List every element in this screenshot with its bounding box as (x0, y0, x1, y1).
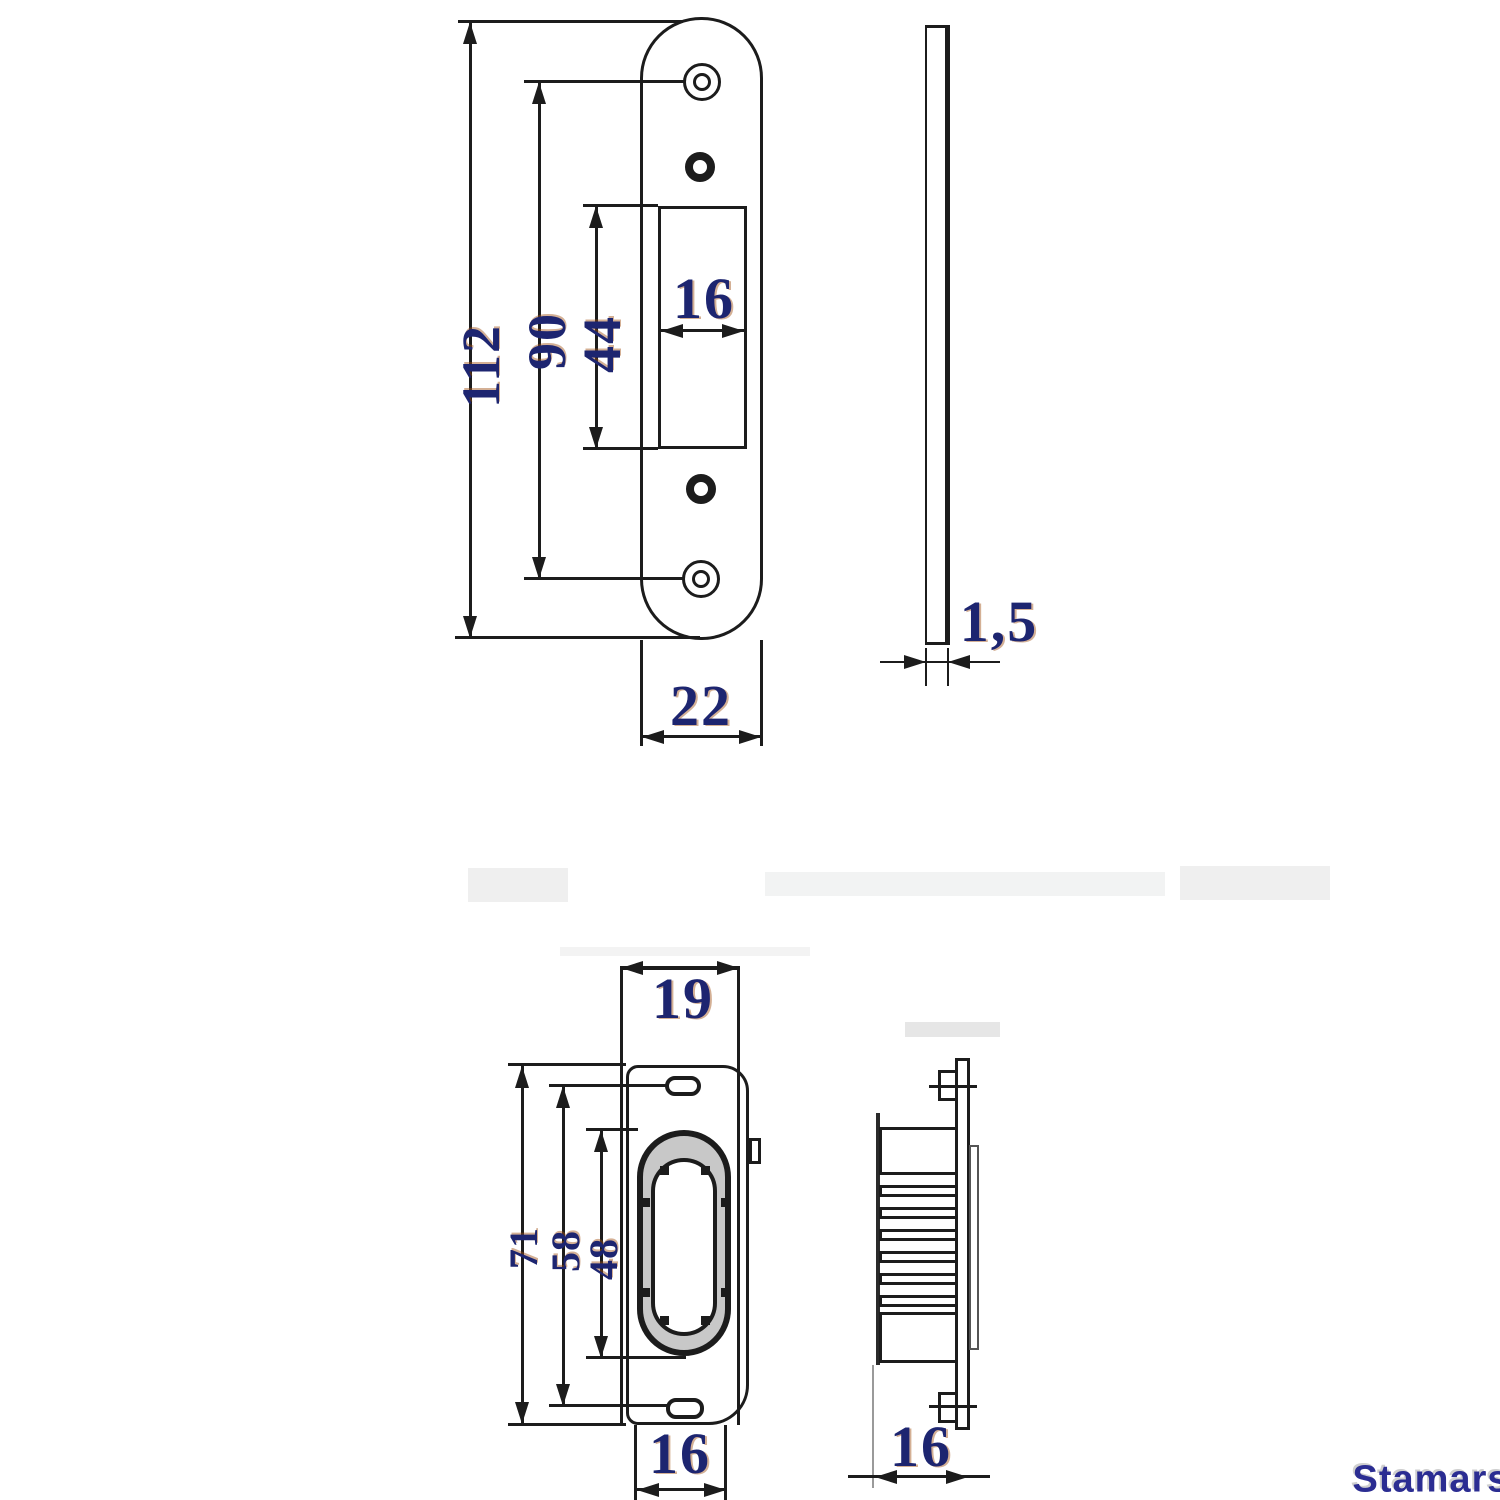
arrowhead (556, 1384, 570, 1406)
arrowhead (717, 961, 739, 975)
arrowhead (904, 655, 926, 669)
keep-box-top-block (879, 1127, 958, 1175)
dim-label-keep-height: 71 (504, 1227, 544, 1269)
extension-line (458, 20, 683, 23)
arrowhead (594, 1130, 608, 1152)
extension-line (524, 577, 684, 580)
arrowhead (532, 82, 546, 104)
dim-label-screw-span: 90 (520, 312, 574, 370)
arrowhead (463, 616, 477, 638)
side-plate-outline (925, 25, 950, 645)
arrowhead (463, 22, 477, 44)
arrowhead (739, 730, 761, 744)
dim-label-keep-width: 19 (652, 970, 714, 1028)
magnet-pocket-inner (651, 1158, 717, 1336)
latch-stop-tab (749, 1138, 761, 1164)
dim-label-cutout-height: 44 (575, 315, 629, 373)
dim-label-cutout-width: 16 (673, 270, 735, 328)
keep-box-bottom-block (879, 1312, 958, 1363)
technical-drawing-canvas: 112 90 44 16 22 1,5 19 (0, 0, 1500, 1500)
arrowhead (515, 1402, 529, 1424)
keep-box-fin (879, 1273, 958, 1285)
dim-label-pocket-height: 48 (584, 1238, 624, 1280)
dim-label-thickness: 1,5 (960, 593, 1039, 651)
pilot-hole-bottom (686, 474, 716, 504)
extension-line (524, 80, 684, 83)
scan-smudge (905, 1022, 1000, 1037)
dim-label-box-width: 16 (649, 1425, 711, 1483)
keep-box-fin (879, 1207, 958, 1219)
keep-box-fin (879, 1185, 958, 1197)
screw-slot-bottom (666, 1398, 704, 1419)
clip-mark (701, 1316, 710, 1325)
scan-smudge (765, 872, 1165, 896)
dim-label-plate-height: 112 (454, 324, 508, 408)
faceplate-raised-pad (969, 1145, 979, 1350)
scan-smudge (468, 868, 568, 902)
keep-box-fin (879, 1295, 958, 1307)
clip-mark (660, 1166, 669, 1175)
keep-box-fin (879, 1251, 958, 1263)
arrowhead (642, 730, 664, 744)
clip-mark (721, 1198, 730, 1207)
arrowhead (594, 1336, 608, 1358)
clip-mark (701, 1166, 710, 1175)
clip-mark (660, 1316, 669, 1325)
clip-mark (721, 1288, 730, 1297)
pilot-hole-top (685, 152, 715, 182)
screw-axis-bottom (929, 1405, 977, 1408)
dim-label-plate-width: 22 (670, 677, 732, 735)
dim-line-thickness (880, 661, 1000, 663)
keep-side-faceplate (955, 1058, 970, 1430)
arrowhead (589, 206, 603, 228)
watermark-logo: Stamars (1353, 1459, 1500, 1500)
clip-mark (641, 1198, 650, 1207)
arrowhead (948, 655, 970, 669)
scan-smudge (1180, 866, 1330, 900)
arrowhead (621, 961, 643, 975)
arrowhead (532, 557, 546, 579)
screw-slot-top (665, 1076, 701, 1096)
arrowhead (515, 1066, 529, 1088)
arrowhead (589, 427, 603, 449)
screw-hole-top-inner (693, 73, 711, 91)
extension-line (872, 1365, 874, 1488)
screw-axis-top (929, 1085, 977, 1088)
keep-box-fin (879, 1229, 958, 1241)
arrowhead (556, 1086, 570, 1108)
scan-smudge (560, 947, 810, 956)
screw-hole-bottom-inner (692, 570, 710, 588)
dim-label-slot-span: 58 (546, 1230, 586, 1272)
dim-label-depth: 16 (890, 1418, 952, 1476)
clip-mark (641, 1288, 650, 1297)
extension-line (455, 636, 700, 639)
